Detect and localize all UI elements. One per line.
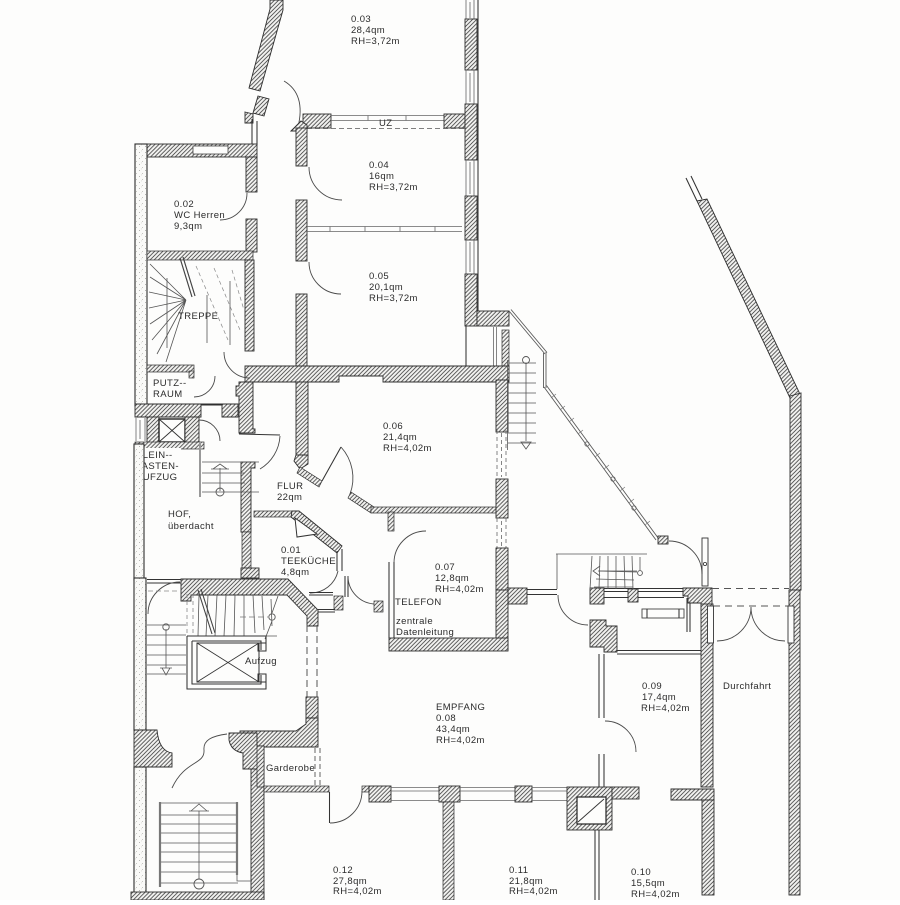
svg-text:RH=4,02m: RH=4,02m	[333, 886, 382, 897]
svg-text:22qm: 22qm	[277, 492, 302, 503]
svg-text:RH=4,02m: RH=4,02m	[383, 443, 432, 454]
svg-text:FLUR: FLUR	[277, 481, 303, 492]
svg-text:HOF,: HOF,	[168, 509, 191, 520]
svg-text:RH=4,02m: RH=4,02m	[436, 735, 485, 746]
svg-text:20,1qm: 20,1qm	[369, 282, 403, 293]
svg-text:0.09: 0.09	[642, 681, 662, 692]
svg-text:TELEFON: TELEFON	[395, 597, 442, 608]
svg-text:überdacht: überdacht	[168, 521, 214, 532]
svg-text:Garderobe: Garderobe	[266, 763, 315, 774]
svg-text:Durchfahrt: Durchfahrt	[723, 681, 771, 692]
svg-text:TREPPE: TREPPE	[178, 311, 218, 322]
svg-text:0.04: 0.04	[369, 160, 389, 171]
svg-text:16qm: 16qm	[369, 171, 394, 182]
svg-text:PUTZ--: PUTZ--	[153, 378, 187, 389]
svg-text:RH=3,72m: RH=3,72m	[369, 182, 418, 193]
svg-text:4,8qm: 4,8qm	[281, 567, 309, 578]
svg-text:0.07: 0.07	[435, 562, 455, 573]
svg-text:0.01: 0.01	[281, 545, 301, 556]
svg-text:RAUM: RAUM	[153, 389, 183, 400]
svg-text:RH=3,72m: RH=3,72m	[351, 36, 400, 47]
svg-text:0.03: 0.03	[351, 14, 371, 25]
svg-text:15,5qm: 15,5qm	[631, 878, 665, 889]
svg-text:0.06: 0.06	[383, 421, 403, 432]
svg-text:17,4qm: 17,4qm	[642, 692, 676, 703]
svg-text:RH=3,72m: RH=3,72m	[369, 293, 418, 304]
svg-text:WC Herren: WC Herren	[174, 210, 225, 221]
svg-text:43,4qm: 43,4qm	[436, 724, 470, 735]
svg-text:0.10: 0.10	[631, 867, 651, 878]
svg-text:RH=4,02m: RH=4,02m	[435, 584, 484, 595]
svg-text:0.12: 0.12	[333, 865, 353, 876]
svg-text:zentrale: zentrale	[396, 616, 433, 627]
svg-text:0.02: 0.02	[174, 199, 194, 210]
svg-text:TEEKÜCHE: TEEKÜCHE	[281, 556, 336, 567]
svg-text:RH=4,02m: RH=4,02m	[509, 886, 558, 897]
svg-text:Aufzug: Aufzug	[245, 656, 277, 667]
svg-text:RH=4,02m: RH=4,02m	[641, 703, 690, 714]
svg-text:EMPFANG: EMPFANG	[436, 702, 485, 713]
svg-text:RH=4,02m: RH=4,02m	[631, 889, 680, 900]
svg-text:21,4qm: 21,4qm	[383, 432, 417, 443]
svg-text:UZ: UZ	[379, 118, 392, 129]
svg-text:0.11: 0.11	[509, 865, 528, 876]
svg-text:Datenleitung: Datenleitung	[396, 627, 454, 638]
svg-text:9,3qm: 9,3qm	[174, 221, 202, 232]
svg-text:12,8qm: 12,8qm	[435, 573, 469, 584]
svg-text:0.08: 0.08	[436, 713, 456, 724]
svg-text:0.05: 0.05	[369, 271, 389, 282]
svg-text:28,4qm: 28,4qm	[351, 25, 385, 36]
